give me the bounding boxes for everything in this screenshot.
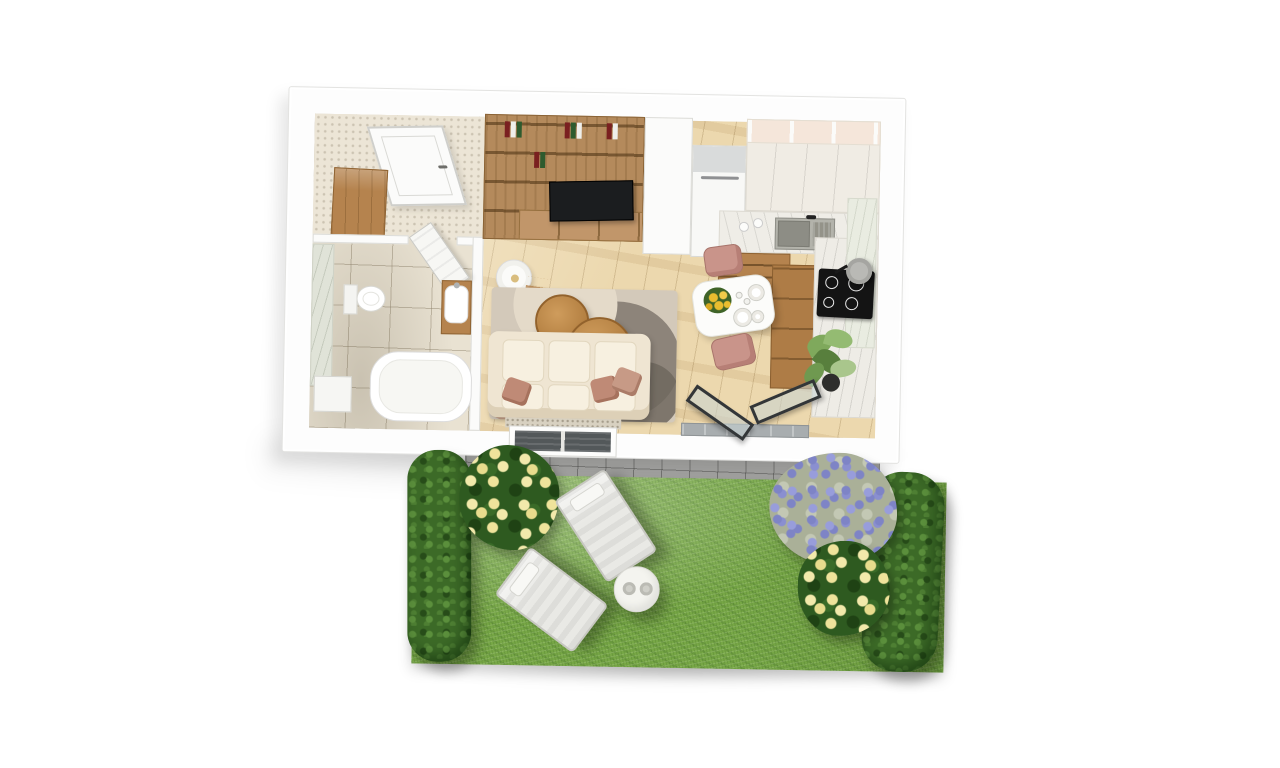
book-spine [607, 123, 612, 139]
cup-icon [623, 582, 636, 595]
book-spine [511, 121, 516, 137]
book-spine [517, 121, 522, 137]
dining-table [690, 272, 777, 338]
book-spine [613, 123, 618, 139]
wall-living-kitchen [642, 117, 693, 255]
book-spine [540, 152, 545, 168]
fridge-handle-icon [701, 176, 739, 180]
faucet-icon [454, 282, 460, 288]
book-spine [577, 123, 582, 139]
dining-chair [702, 243, 744, 278]
door-handle-icon [438, 165, 448, 168]
book-spine [505, 121, 510, 137]
washing-machine [313, 376, 352, 413]
lamp-bulb-icon [511, 274, 519, 282]
garden [411, 473, 946, 672]
floorplan-render [0, 0, 1280, 768]
wall-hall-bathroom [313, 234, 409, 245]
bathroom-marble-panel [310, 244, 335, 386]
cup-icon [640, 582, 653, 595]
book-spine [534, 152, 539, 168]
book-spine [565, 122, 570, 138]
bathtub [369, 351, 472, 423]
plant-pot-icon [822, 373, 840, 391]
television [549, 180, 634, 221]
book-spine [571, 123, 576, 139]
washbasin-vanity [441, 280, 472, 335]
apartment-building [282, 86, 907, 464]
wardrobe [330, 167, 388, 242]
faucet-icon [806, 215, 816, 219]
kitchen-open-top-cabinets [747, 119, 881, 146]
